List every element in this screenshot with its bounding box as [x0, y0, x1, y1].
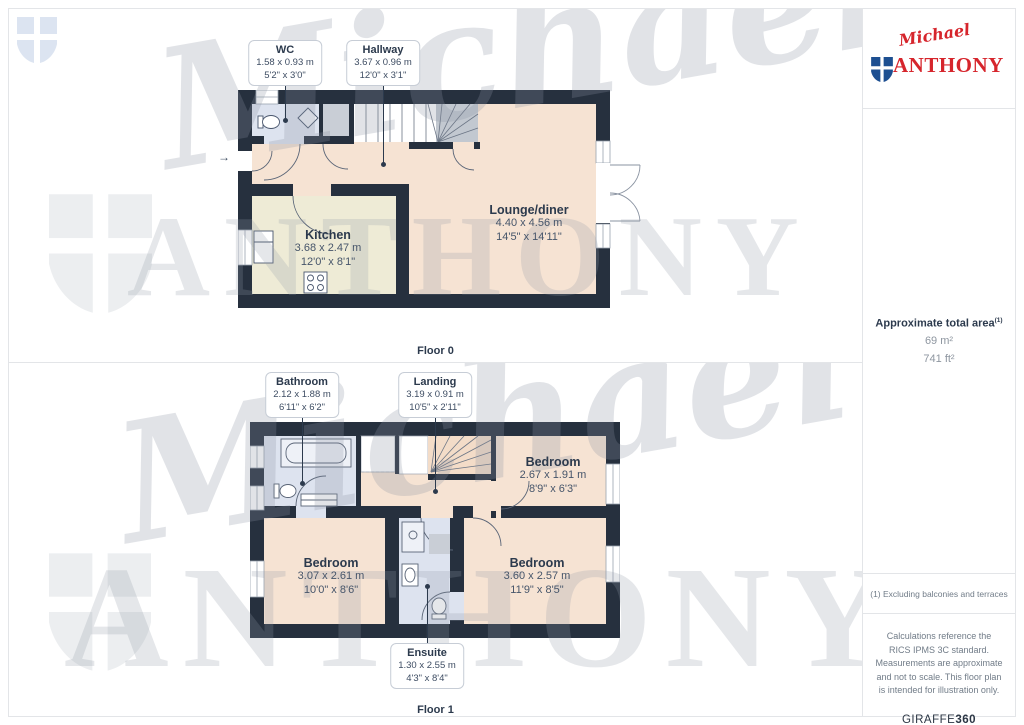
stove-icon — [304, 272, 327, 293]
leader-dot — [283, 118, 288, 123]
room-label-kitchen: Kitchen 3.68 x 2.47 m 12'0" x 8'1" — [295, 228, 362, 269]
total-area-m2: 69 m² — [925, 335, 953, 347]
toilet-icon — [274, 484, 296, 498]
total-area-ft2: 741 ft² — [923, 353, 954, 365]
cupboard — [429, 534, 450, 554]
floor0-plan — [238, 90, 683, 308]
callout-ensuite: Ensuite 1.30 x 2.55 m 4'3" x 8'4" — [390, 643, 464, 689]
leader-line — [435, 414, 436, 491]
shower-icon — [402, 522, 424, 552]
disclaimer-text: Calculations reference the RICS IPMS 3C … — [863, 630, 1015, 698]
leader-line — [285, 84, 286, 120]
room-label-lounge: Lounge/diner 4.40 x 4.56 m 14'5" x 14'11… — [489, 203, 568, 244]
leader-dot — [433, 489, 438, 494]
toilet-icon — [258, 116, 280, 129]
floor1-panel: Michael ANTHONY — [9, 363, 862, 716]
leader-dot — [425, 584, 430, 589]
footnote-section: (1) Excluding balconies and terraces — [863, 574, 1015, 614]
leader-line — [302, 414, 303, 483]
giraffe360-credit: GIRAFFE360 — [863, 714, 1015, 725]
sink-icon — [402, 564, 418, 586]
leader-line — [427, 586, 428, 643]
info-sidebar: Michael ANTHONY Approximate total area(1… — [863, 9, 1015, 716]
floor0-french-doors — [596, 163, 640, 223]
callout-wc: WC 1.58 x 0.93 m 5'2" x 3'0" — [248, 40, 322, 86]
sink-icon — [301, 494, 337, 506]
total-area-section: Approximate total area(1) 69 m² 741 ft² — [863, 109, 1015, 574]
agency-name-serif: ANTHONY — [893, 53, 1004, 78]
agency-shield-icon — [871, 57, 893, 82]
room-label-bedroom-1: Bedroom 2.67 x 1.91 m 8'9" x 6'3" — [520, 455, 587, 496]
document-frame: Michael ANTHONY — [8, 8, 1016, 717]
kitchen-counter-icon — [254, 231, 273, 263]
floor0-caption: Floor 0 — [9, 345, 862, 357]
agency-name-script: Michael — [898, 20, 972, 50]
room-label-bedroom-3: Bedroom 3.60 x 2.57 m 11'9" x 8'5" — [504, 556, 571, 597]
total-area-label: Approximate total area(1) — [875, 317, 1002, 330]
floor1-caption: Floor 1 — [9, 704, 862, 716]
plans-area: Michael ANTHONY — [9, 9, 863, 716]
callout-hallway: Hallway 3.67 x 0.96 m 12'0" x 3'1" — [346, 40, 420, 86]
room-label-bedroom-2: Bedroom 3.07 x 2.61 m 10'0" x 8'6" — [298, 556, 365, 597]
footnote-text: (1) Excluding balconies and terraces — [870, 589, 1008, 599]
agency-logo: Michael ANTHONY — [863, 9, 1015, 109]
leader-dot — [381, 162, 386, 167]
floor0-panel: Michael ANTHONY — [9, 9, 862, 363]
floorplan-page: Michael ANTHONY — [0, 0, 1024, 725]
toilet-icon — [432, 598, 446, 619]
leader-line — [383, 84, 384, 164]
entry-arrow-icon: → — [218, 150, 230, 164]
callout-landing: Landing 3.19 x 0.91 m 10'5" x 2'11" — [398, 372, 472, 418]
disclaimer-section: Calculations reference the RICS IPMS 3C … — [863, 614, 1015, 725]
callout-bathroom: Bathroom 2.12 x 1.88 m 6'11" x 6'2" — [265, 372, 339, 418]
leader-dot — [300, 481, 305, 486]
bathtub-icon — [281, 439, 351, 467]
